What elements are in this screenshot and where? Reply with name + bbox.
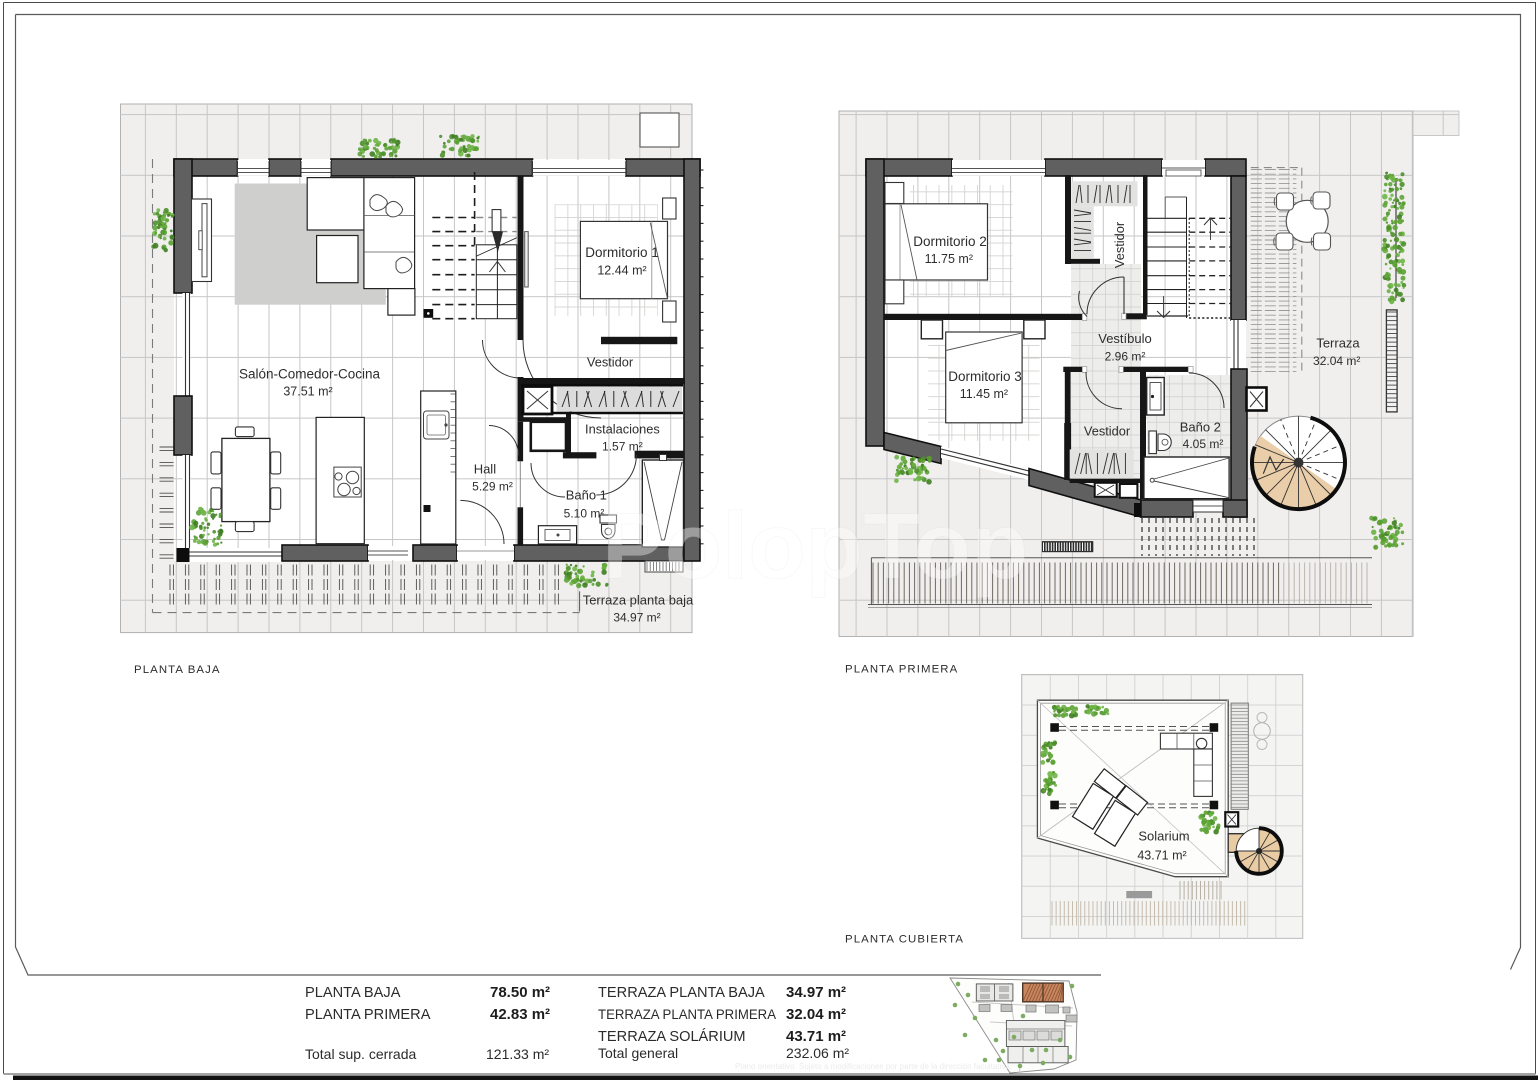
svg-text:5.29 m²: 5.29 m² [472, 480, 513, 494]
svg-text:Vestidor: Vestidor [587, 355, 634, 370]
svg-text:34.97 m²: 34.97 m² [613, 611, 660, 625]
svg-text:37.51 m²: 37.51 m² [283, 385, 332, 399]
svg-text:Dormitorio 3: Dormitorio 3 [948, 369, 1022, 384]
svg-text:43.71 m²: 43.71 m² [1137, 849, 1186, 863]
svg-text:TERRAZA PLANTA PRIMERA: TERRAZA PLANTA PRIMERA [598, 1007, 776, 1023]
svg-text:PLANTA CUBIERTA: PLANTA CUBIERTA [845, 934, 964, 946]
svg-text:121.33 m²: 121.33 m² [486, 1046, 549, 1062]
svg-text:11.75 m²: 11.75 m² [925, 252, 973, 266]
svg-text:Salón-Comedor-Cocina: Salón-Comedor-Cocina [239, 367, 381, 382]
svg-text:32.04 m²: 32.04 m² [1313, 354, 1360, 368]
svg-text:Vestidor: Vestidor [1112, 221, 1127, 268]
svg-text:43.71 m²: 43.71 m² [786, 1028, 846, 1045]
svg-text:Instalaciones: Instalaciones [585, 422, 660, 437]
svg-text:2.96 m²: 2.96 m² [1105, 350, 1146, 364]
svg-text:Plano orientativo. Sujeto a mo: Plano orientativo. Sujeto a modificacion… [735, 1062, 1012, 1071]
svg-text:1.57 m²: 1.57 m² [602, 440, 643, 454]
svg-text:Hall: Hall [474, 462, 497, 477]
svg-text:Dormitorio 1: Dormitorio 1 [585, 245, 659, 260]
svg-text:12.44 m²: 12.44 m² [597, 264, 646, 278]
svg-text:PLANTA PRIMERA: PLANTA PRIMERA [845, 664, 958, 676]
svg-text:TERRAZA SOLÁRIUM: TERRAZA SOLÁRIUM [598, 1028, 746, 1045]
svg-text:Total sup. cerrada: Total sup. cerrada [305, 1046, 416, 1062]
svg-text:78.50 m²: 78.50 m² [490, 984, 550, 1001]
svg-text:Vestidor: Vestidor [1084, 424, 1131, 439]
svg-text:PLANTA BAJA: PLANTA BAJA [305, 985, 401, 1001]
svg-text:TERRAZA PLANTA BAJA: TERRAZA PLANTA BAJA [598, 985, 765, 1001]
svg-text:232.06 m²: 232.06 m² [786, 1045, 849, 1061]
svg-text:PolopTop: PolopTop [602, 493, 1028, 598]
svg-text:34.97 m²: 34.97 m² [786, 984, 846, 1001]
svg-text:32.04 m²: 32.04 m² [786, 1006, 846, 1023]
svg-text:Total general: Total general [598, 1045, 678, 1061]
svg-text:4.05 m²: 4.05 m² [1183, 437, 1224, 451]
svg-text:Baño 1: Baño 1 [566, 488, 607, 503]
svg-text:Baño 2: Baño 2 [1180, 420, 1221, 435]
svg-text:11.45 m²: 11.45 m² [960, 387, 1008, 401]
svg-text:Vestíbulo: Vestíbulo [1098, 331, 1152, 346]
svg-text:PLANTA PRIMERA: PLANTA PRIMERA [305, 1007, 431, 1023]
svg-text:Terraza: Terraza [1316, 336, 1360, 351]
svg-text:Solarium: Solarium [1138, 829, 1189, 844]
svg-text:42.83 m²: 42.83 m² [490, 1006, 550, 1023]
svg-text:5.10 m²: 5.10 m² [564, 507, 605, 521]
svg-text:Dormitorio 2: Dormitorio 2 [913, 234, 987, 249]
svg-text:PLANTA BAJA: PLANTA BAJA [134, 664, 221, 676]
